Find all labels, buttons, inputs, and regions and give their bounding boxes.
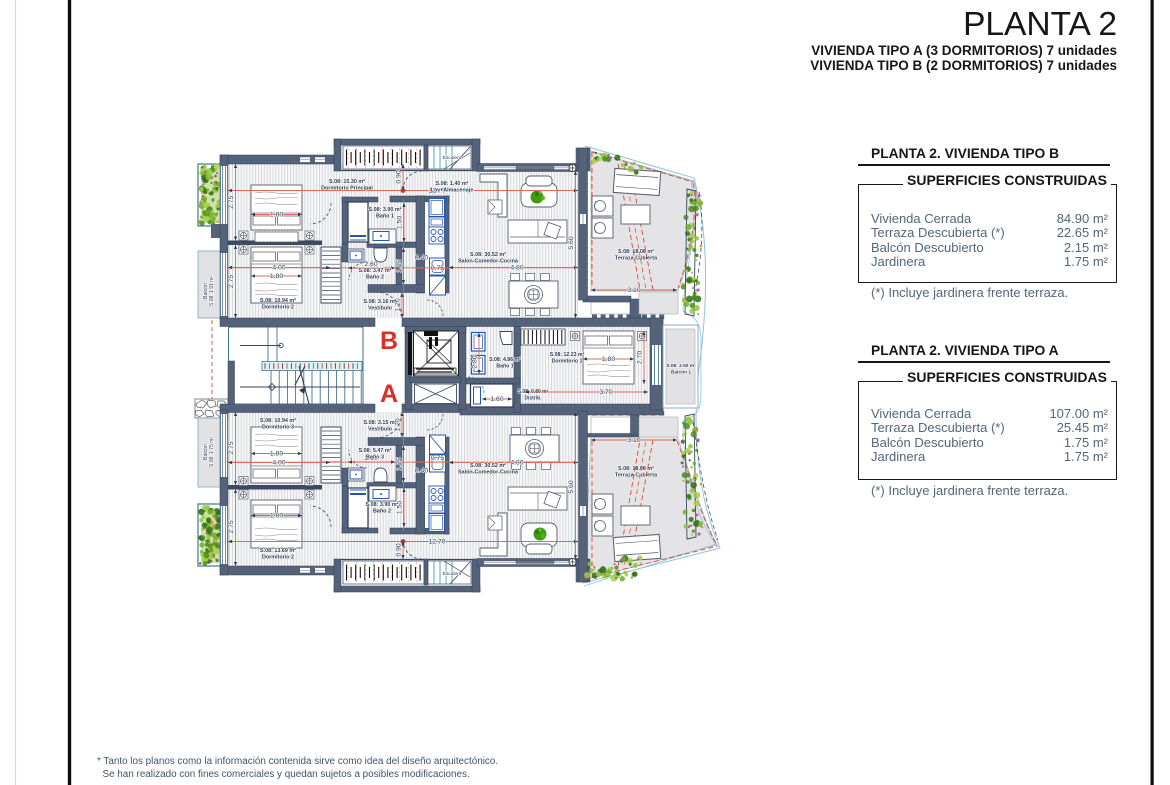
- svg-text:S.08: 3.16 m²: S.08: 3.16 m²: [364, 299, 397, 305]
- svg-text:S.08: 12.23 m²: S.08: 12.23 m²: [550, 352, 585, 358]
- svg-text:S.08: 10.94 m²: S.08: 10.94 m²: [260, 418, 296, 424]
- svg-text:Baño 3: Baño 3: [366, 455, 384, 461]
- svg-text:1.80: 1.80: [270, 451, 283, 458]
- svg-text:Dormitorio 3: Dormitorio 3: [262, 425, 294, 431]
- svg-text:S.08: 15.30 m²: S.08: 15.30 m²: [329, 179, 365, 185]
- svg-text:S.08: 18.08 m²: S.08: 18.08 m²: [618, 249, 654, 255]
- svg-text:2.75: 2.75: [228, 195, 235, 208]
- svg-text:S.08: 3.90 m²: S.08: 3.90 m²: [369, 207, 402, 213]
- svg-text:Salón-Comedor-Cocina: Salón-Comedor-Cocina: [458, 259, 519, 265]
- svg-text:B: B: [380, 327, 398, 355]
- svg-text:0.75: 0.75: [431, 265, 444, 272]
- svg-text:Baño 2: Baño 2: [373, 509, 391, 515]
- svg-text:4.80: 4.80: [510, 460, 523, 467]
- svg-text:Vestíbulo: Vestíbulo: [368, 427, 393, 433]
- svg-text:S.08: 18.08 m²: S.08: 18.08 m²: [618, 466, 654, 472]
- svg-text:Baño 2: Baño 2: [366, 275, 384, 281]
- svg-text:1.25: 1.25: [396, 259, 403, 272]
- svg-text:1.80: 1.80: [270, 273, 283, 280]
- svg-text:Baño 1: Baño 1: [376, 214, 394, 220]
- svg-text:Balcón 1: Balcón 1: [671, 370, 691, 376]
- svg-text:Escalera: Escalera: [443, 571, 462, 577]
- svg-text:4.00: 4.00: [272, 265, 285, 272]
- svg-text:3.10: 3.10: [627, 287, 640, 294]
- svg-text:S.08: 3.15 m²: S.08: 3.15 m²: [364, 420, 397, 426]
- svg-text:1.80: 1.80: [270, 212, 283, 219]
- svg-text:S.08: 2.50 m²: S.08: 2.50 m²: [666, 363, 696, 369]
- svg-text:1.60: 1.60: [490, 396, 503, 403]
- svg-text:Vestíbulo: Vestíbulo: [368, 306, 393, 312]
- svg-text:1.25: 1.25: [396, 457, 403, 470]
- svg-text:Terraza Cubierta: Terraza Cubierta: [615, 256, 658, 262]
- svg-text:S.08: 5.47 m²: S.08: 5.47 m²: [359, 448, 392, 454]
- svg-text:Dormitorio 2: Dormitorio 2: [262, 305, 294, 311]
- svg-text:S.08: 30.52 m²: S.08: 30.52 m²: [470, 252, 506, 258]
- svg-text:0.40: 0.40: [415, 255, 428, 262]
- svg-text:12.70: 12.70: [428, 539, 445, 546]
- svg-text:S.08: 10.94 m²: S.08: 10.94 m²: [260, 298, 296, 304]
- svg-text:1.80: 1.80: [270, 513, 283, 520]
- svg-text:0.40: 0.40: [415, 468, 428, 475]
- svg-text:0.90: 0.90: [396, 170, 403, 183]
- svg-text:S.08: 3.90 m²: S.08: 3.90 m²: [366, 502, 399, 508]
- svg-text:S.08: 3.47 m²: S.08: 3.47 m²: [359, 268, 392, 274]
- svg-text:2.75: 2.75: [228, 520, 235, 533]
- svg-text:A: A: [380, 380, 398, 408]
- svg-text:Distrib.: Distrib.: [524, 396, 542, 402]
- svg-text:S.08: 4.86 m²: S.08: 4.86 m²: [489, 357, 521, 363]
- svg-text:4.00: 4.00: [272, 460, 285, 467]
- svg-text:Dormitorio Principal: Dormitorio Principal: [321, 186, 373, 192]
- svg-text:0.90: 0.90: [396, 543, 403, 556]
- svg-text:S.08: 1.75 m²: S.08: 1.75 m²: [209, 437, 215, 467]
- svg-text:2.75: 2.75: [228, 275, 235, 288]
- svg-text:5.60: 5.60: [568, 480, 575, 493]
- svg-text:3.70: 3.70: [599, 389, 612, 396]
- svg-text:2.80: 2.80: [472, 355, 479, 368]
- svg-text:Dormitorio 1: Dormitorio 1: [552, 359, 583, 365]
- svg-text:1.50: 1.50: [397, 216, 404, 229]
- svg-text:S.08: 1.40 m²: S.08: 1.40 m²: [436, 181, 469, 187]
- svg-text:S.08: 13.69 m²: S.08: 13.69 m²: [260, 548, 296, 554]
- svg-text:Lav+Almacenaje: Lav+Almacenaje: [431, 188, 473, 194]
- svg-text:5.60: 5.60: [568, 236, 575, 249]
- svg-text:Escalera: Escalera: [443, 155, 462, 161]
- svg-text:2.70: 2.70: [637, 351, 644, 364]
- svg-text:S.08: 1.91 m²: S.08: 1.91 m²: [209, 276, 215, 306]
- svg-text:Terraza Cubierta: Terraza Cubierta: [615, 473, 658, 479]
- svg-text:2.75: 2.75: [228, 441, 235, 454]
- svg-text:S.08: 30.52 m²: S.08: 30.52 m²: [470, 463, 506, 469]
- svg-text:0.75: 0.75: [431, 455, 444, 462]
- svg-text:4.80: 4.80: [510, 265, 523, 272]
- svg-text:Salón-Comedor-Cocina: Salón-Comedor-Cocina: [458, 470, 519, 476]
- svg-text:Baño 1: Baño 1: [496, 364, 513, 370]
- svg-text:3.10: 3.10: [627, 437, 640, 444]
- svg-text:1.80: 1.80: [602, 356, 615, 363]
- svg-text:Dormitorio 2: Dormitorio 2: [262, 555, 294, 561]
